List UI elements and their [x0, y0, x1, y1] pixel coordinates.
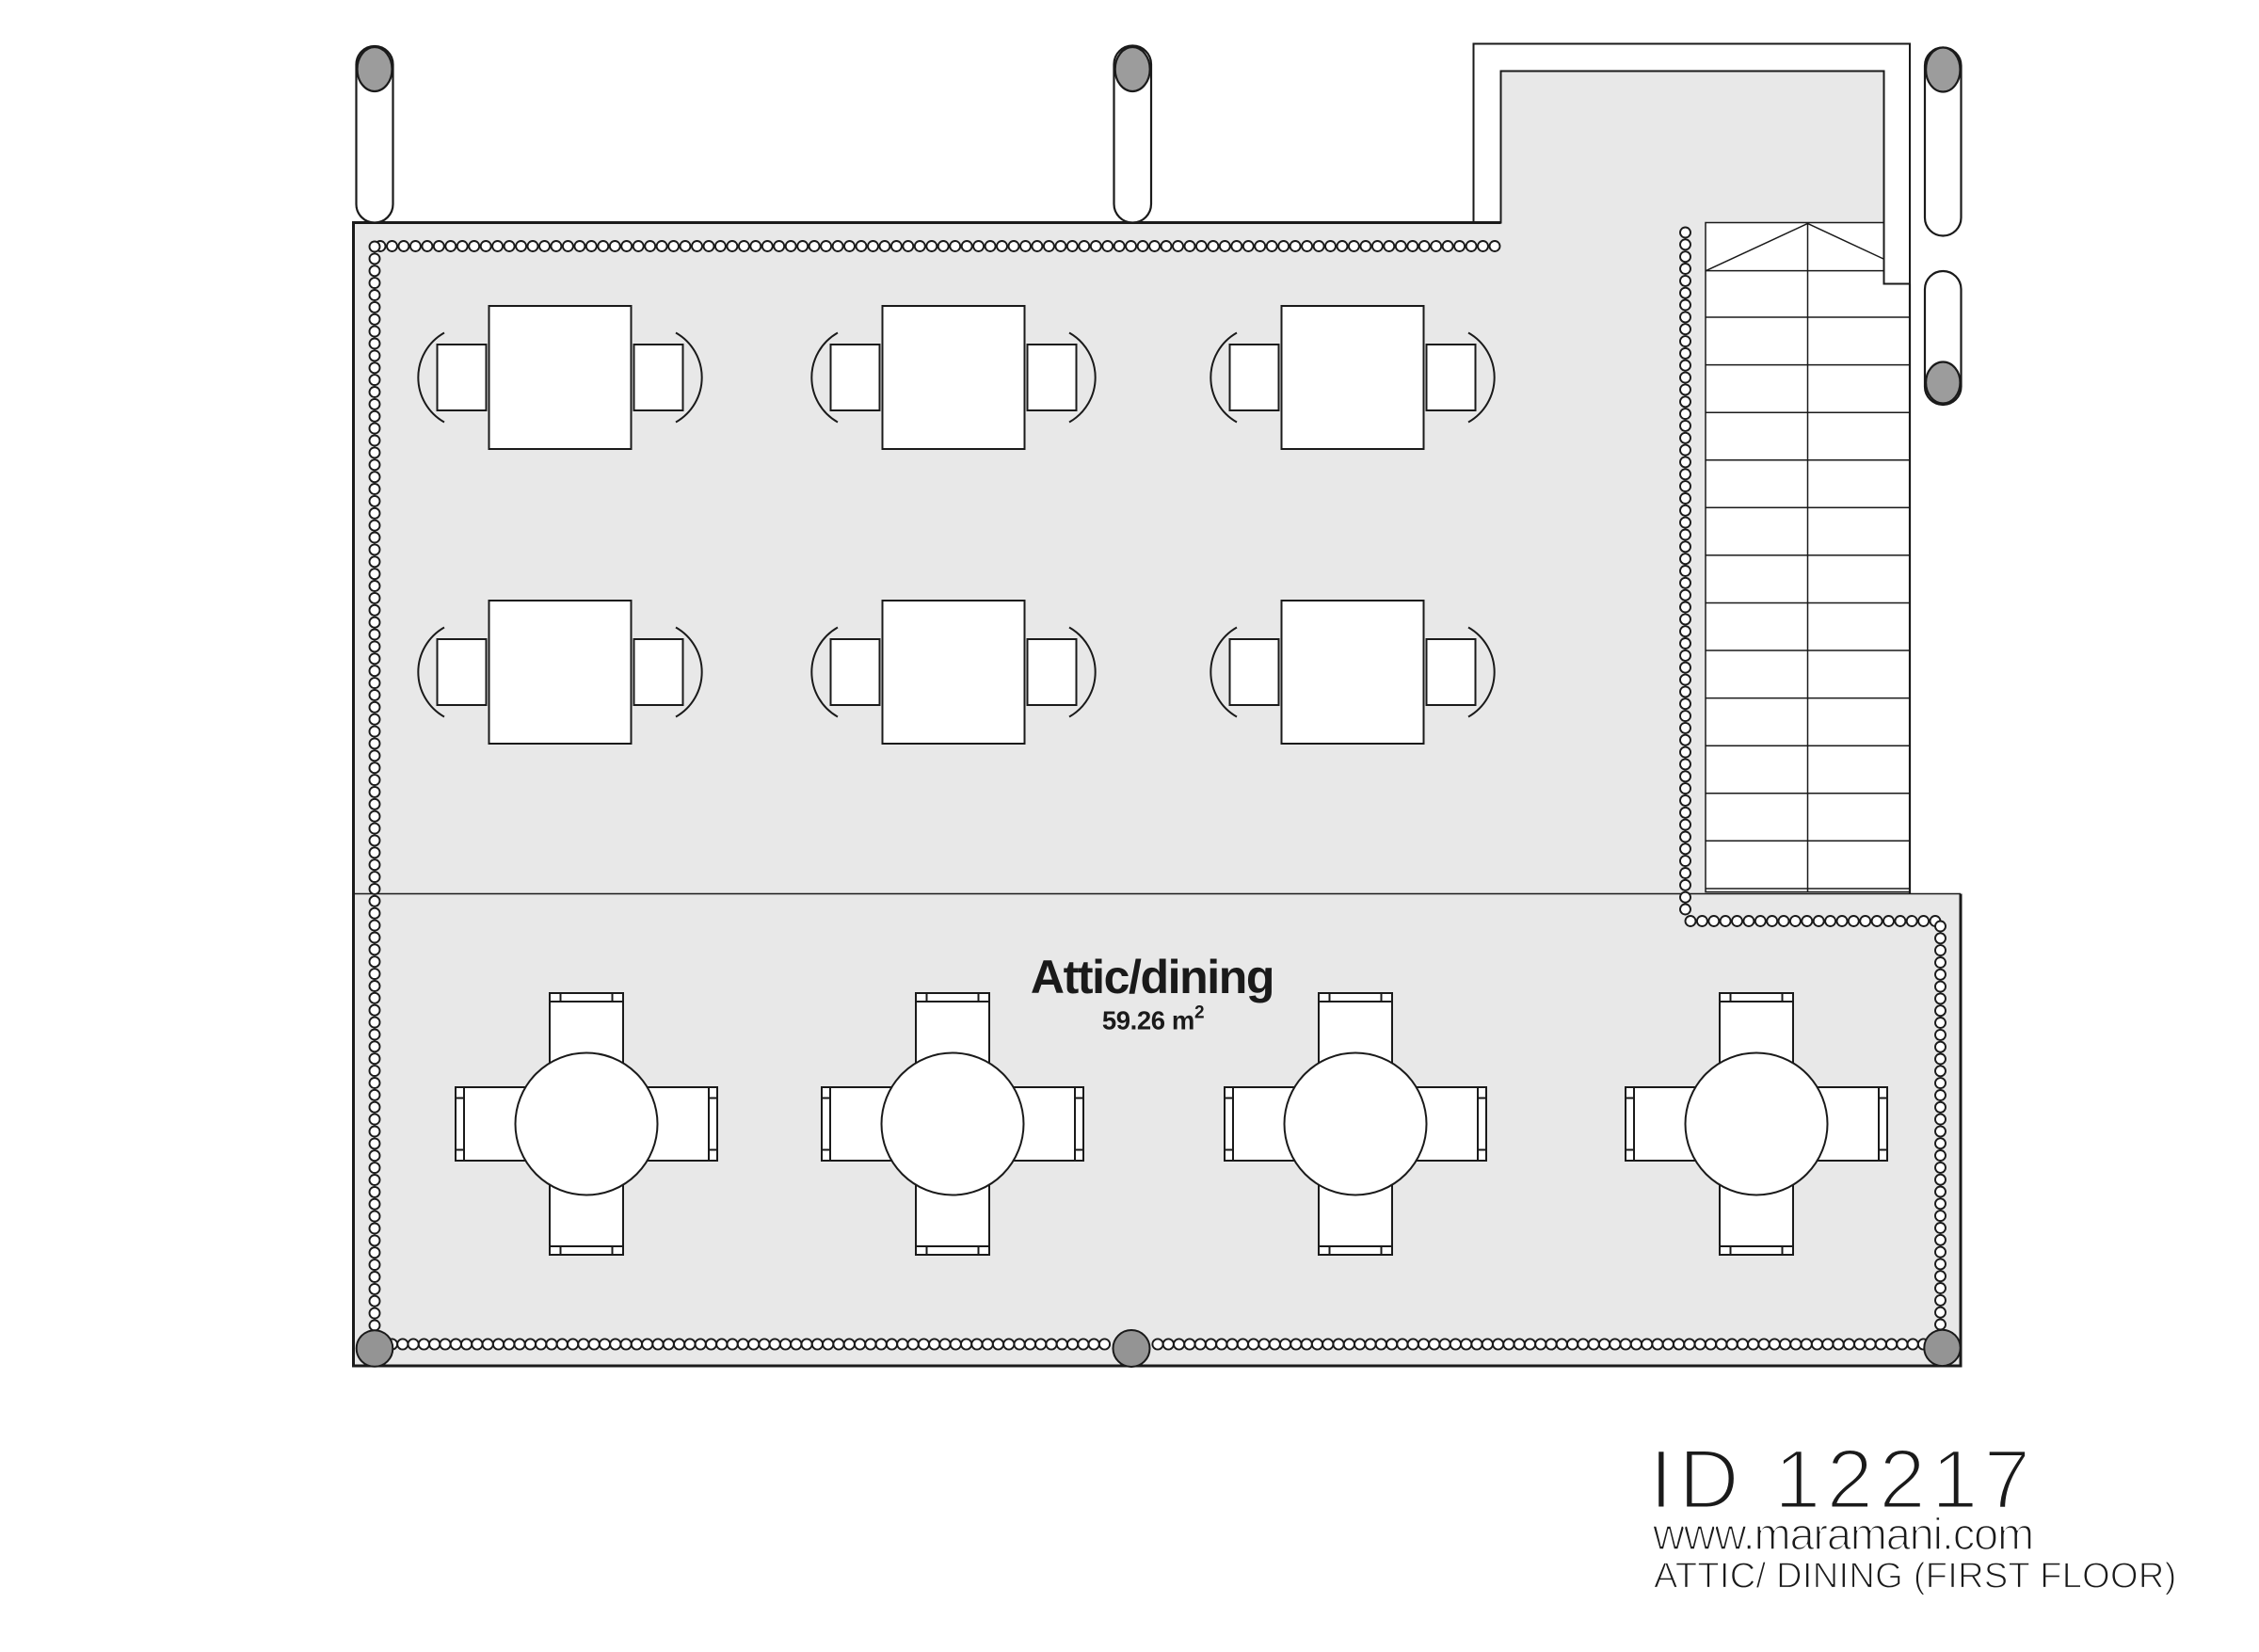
- svg-text:59.26 m2: 59.26 m2: [1102, 1003, 1204, 1035]
- svg-text:ATTIC/ DINING (FIRST FLOOR): ATTIC/ DINING (FIRST FLOOR): [1654, 1557, 2177, 1596]
- svg-text:www.maramani.com: www.maramani.com: [1652, 1509, 2033, 1559]
- svg-text:Attic/dining: Attic/dining: [1031, 951, 1274, 1003]
